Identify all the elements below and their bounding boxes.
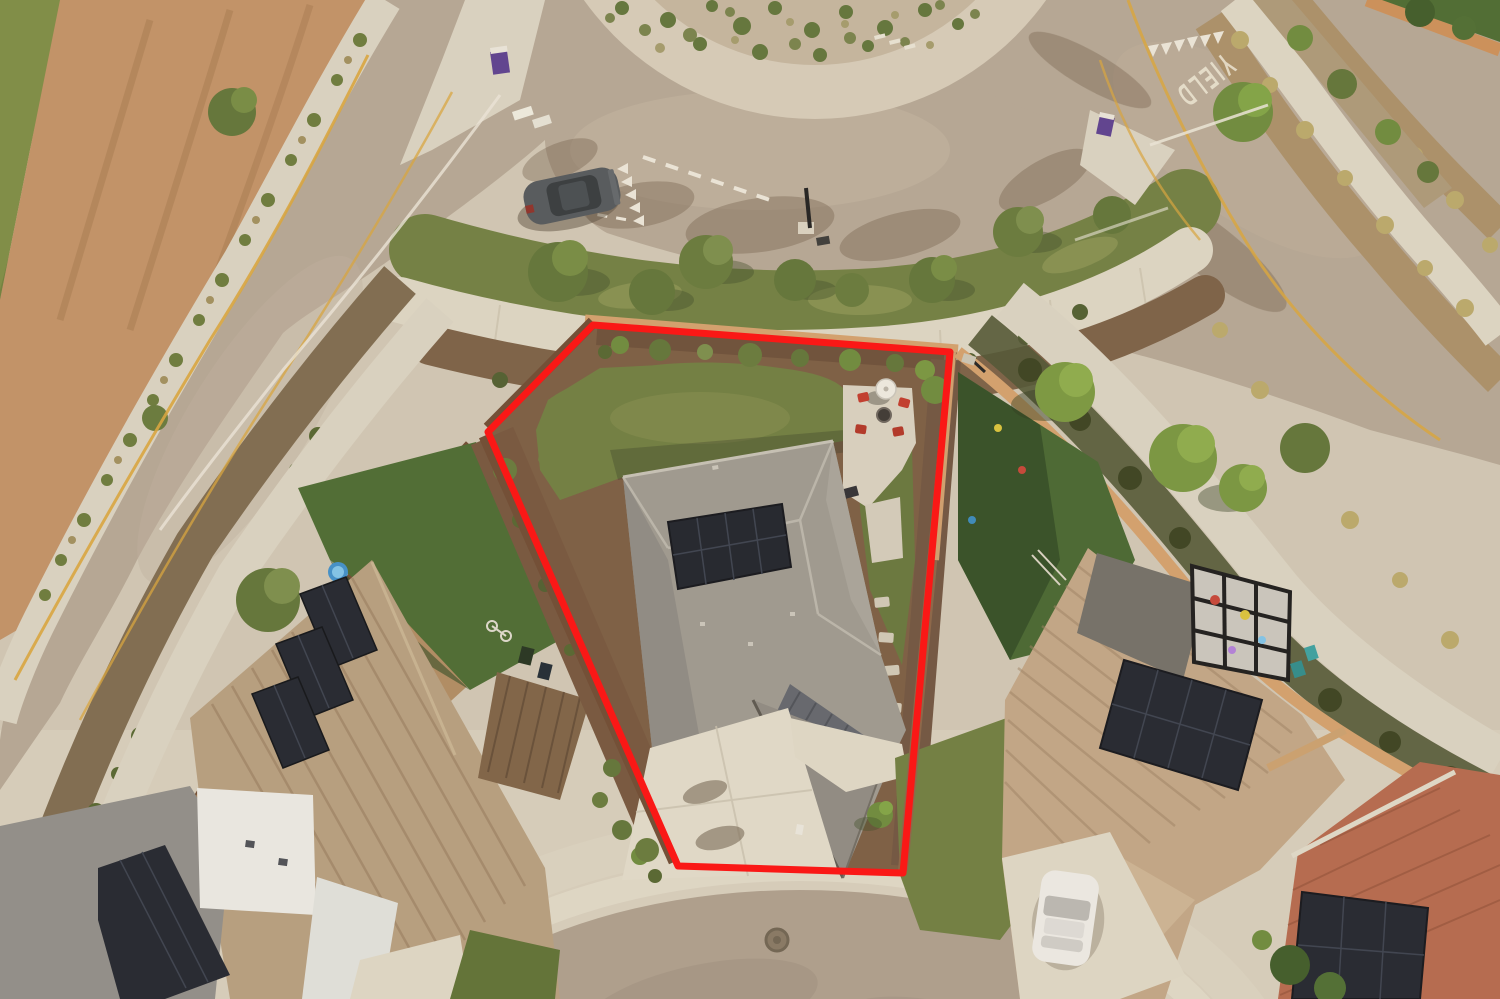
aerial-photo-canvas: YIELD <box>0 0 1500 999</box>
photo-haze <box>0 0 1500 999</box>
aerial-photo: YIELD <box>0 0 1500 999</box>
